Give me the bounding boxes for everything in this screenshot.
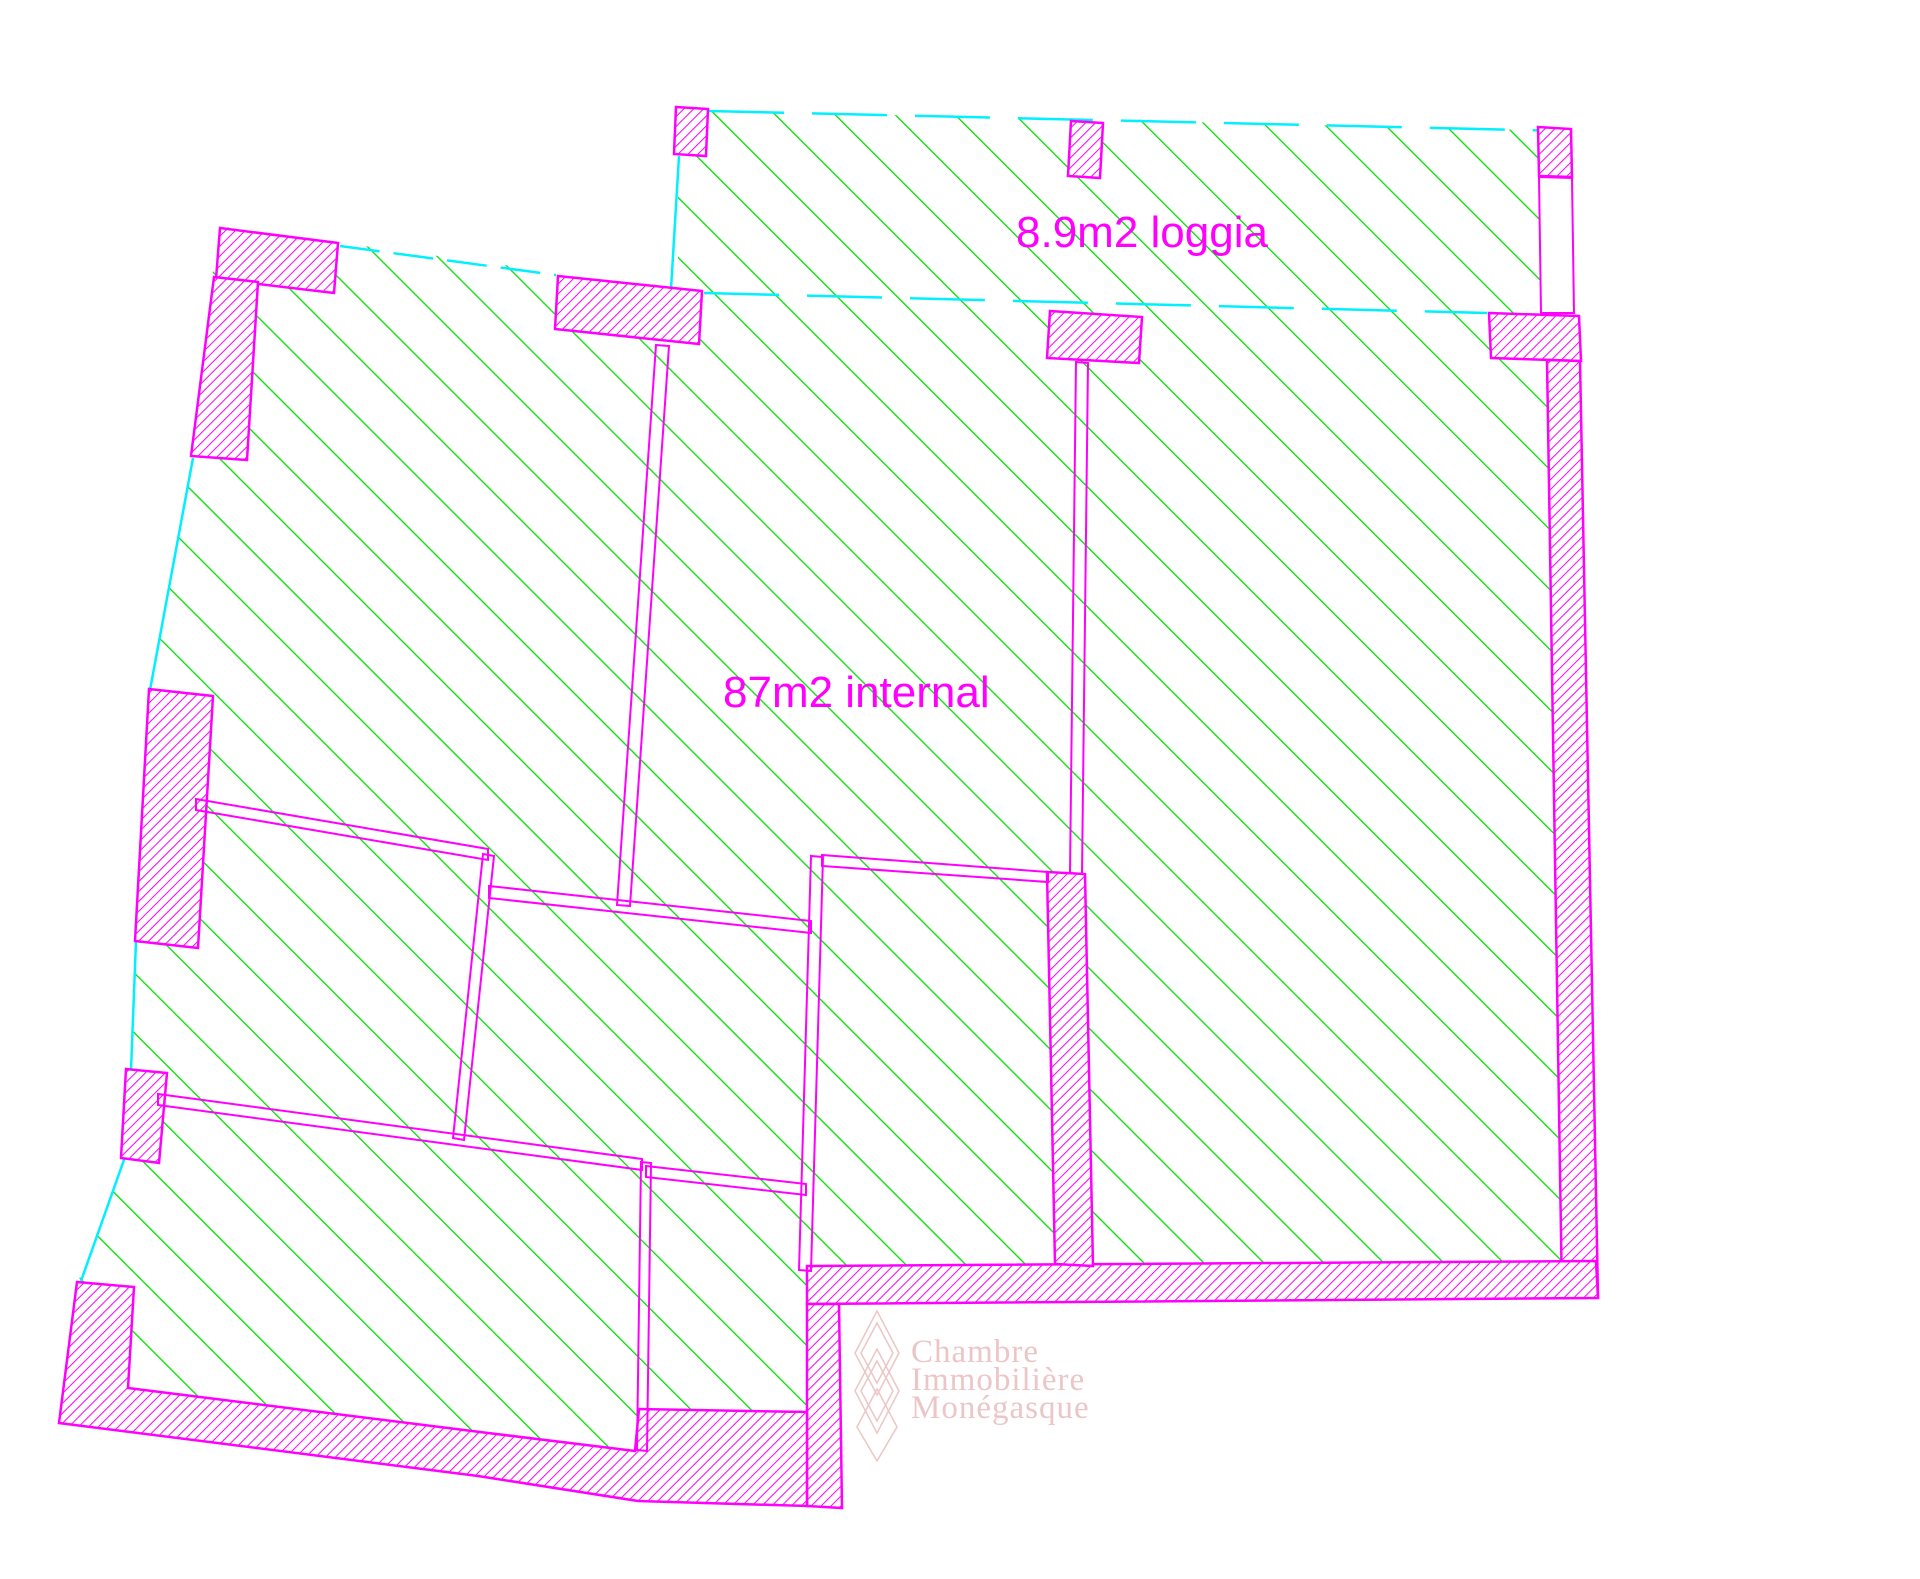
wall-step-return — [807, 1304, 842, 1508]
wall-loggia-right-column — [1489, 313, 1581, 361]
diamond-icon — [857, 1389, 897, 1461]
wall-interior-thick — [1047, 872, 1093, 1266]
wall-top-right-column — [1538, 127, 1572, 177]
wall-left-upper-block — [135, 689, 213, 948]
loggia-area-label: 8.9m2 loggia — [1016, 208, 1268, 257]
watermark: Chambre Immobilière Monégasque — [855, 1311, 1090, 1461]
wall-bottom-band-right — [807, 1261, 1598, 1304]
floor-plan-drawing: 8.9m2 loggia 87m2 internal Chambre Immob… — [0, 0, 1920, 1579]
wall-left-lower-block — [121, 1069, 167, 1163]
wall-loggia-left-column — [674, 107, 708, 156]
floor-plan-page: 8.9m2 loggia 87m2 internal Chambre Immob… — [0, 0, 1920, 1579]
wall-top-left-vertical — [191, 277, 258, 460]
wall-loggia-bottom-column — [1047, 311, 1142, 363]
watermark-diamond-logo — [855, 1311, 899, 1461]
wall-loggia-top-column — [1068, 121, 1103, 178]
watermark-line-3: Monégasque — [911, 1390, 1090, 1426]
right-window-strip — [1539, 177, 1574, 313]
loggia-left-boundary-line — [671, 156, 679, 289]
internal-area-label: 87m2 internal — [723, 668, 990, 717]
